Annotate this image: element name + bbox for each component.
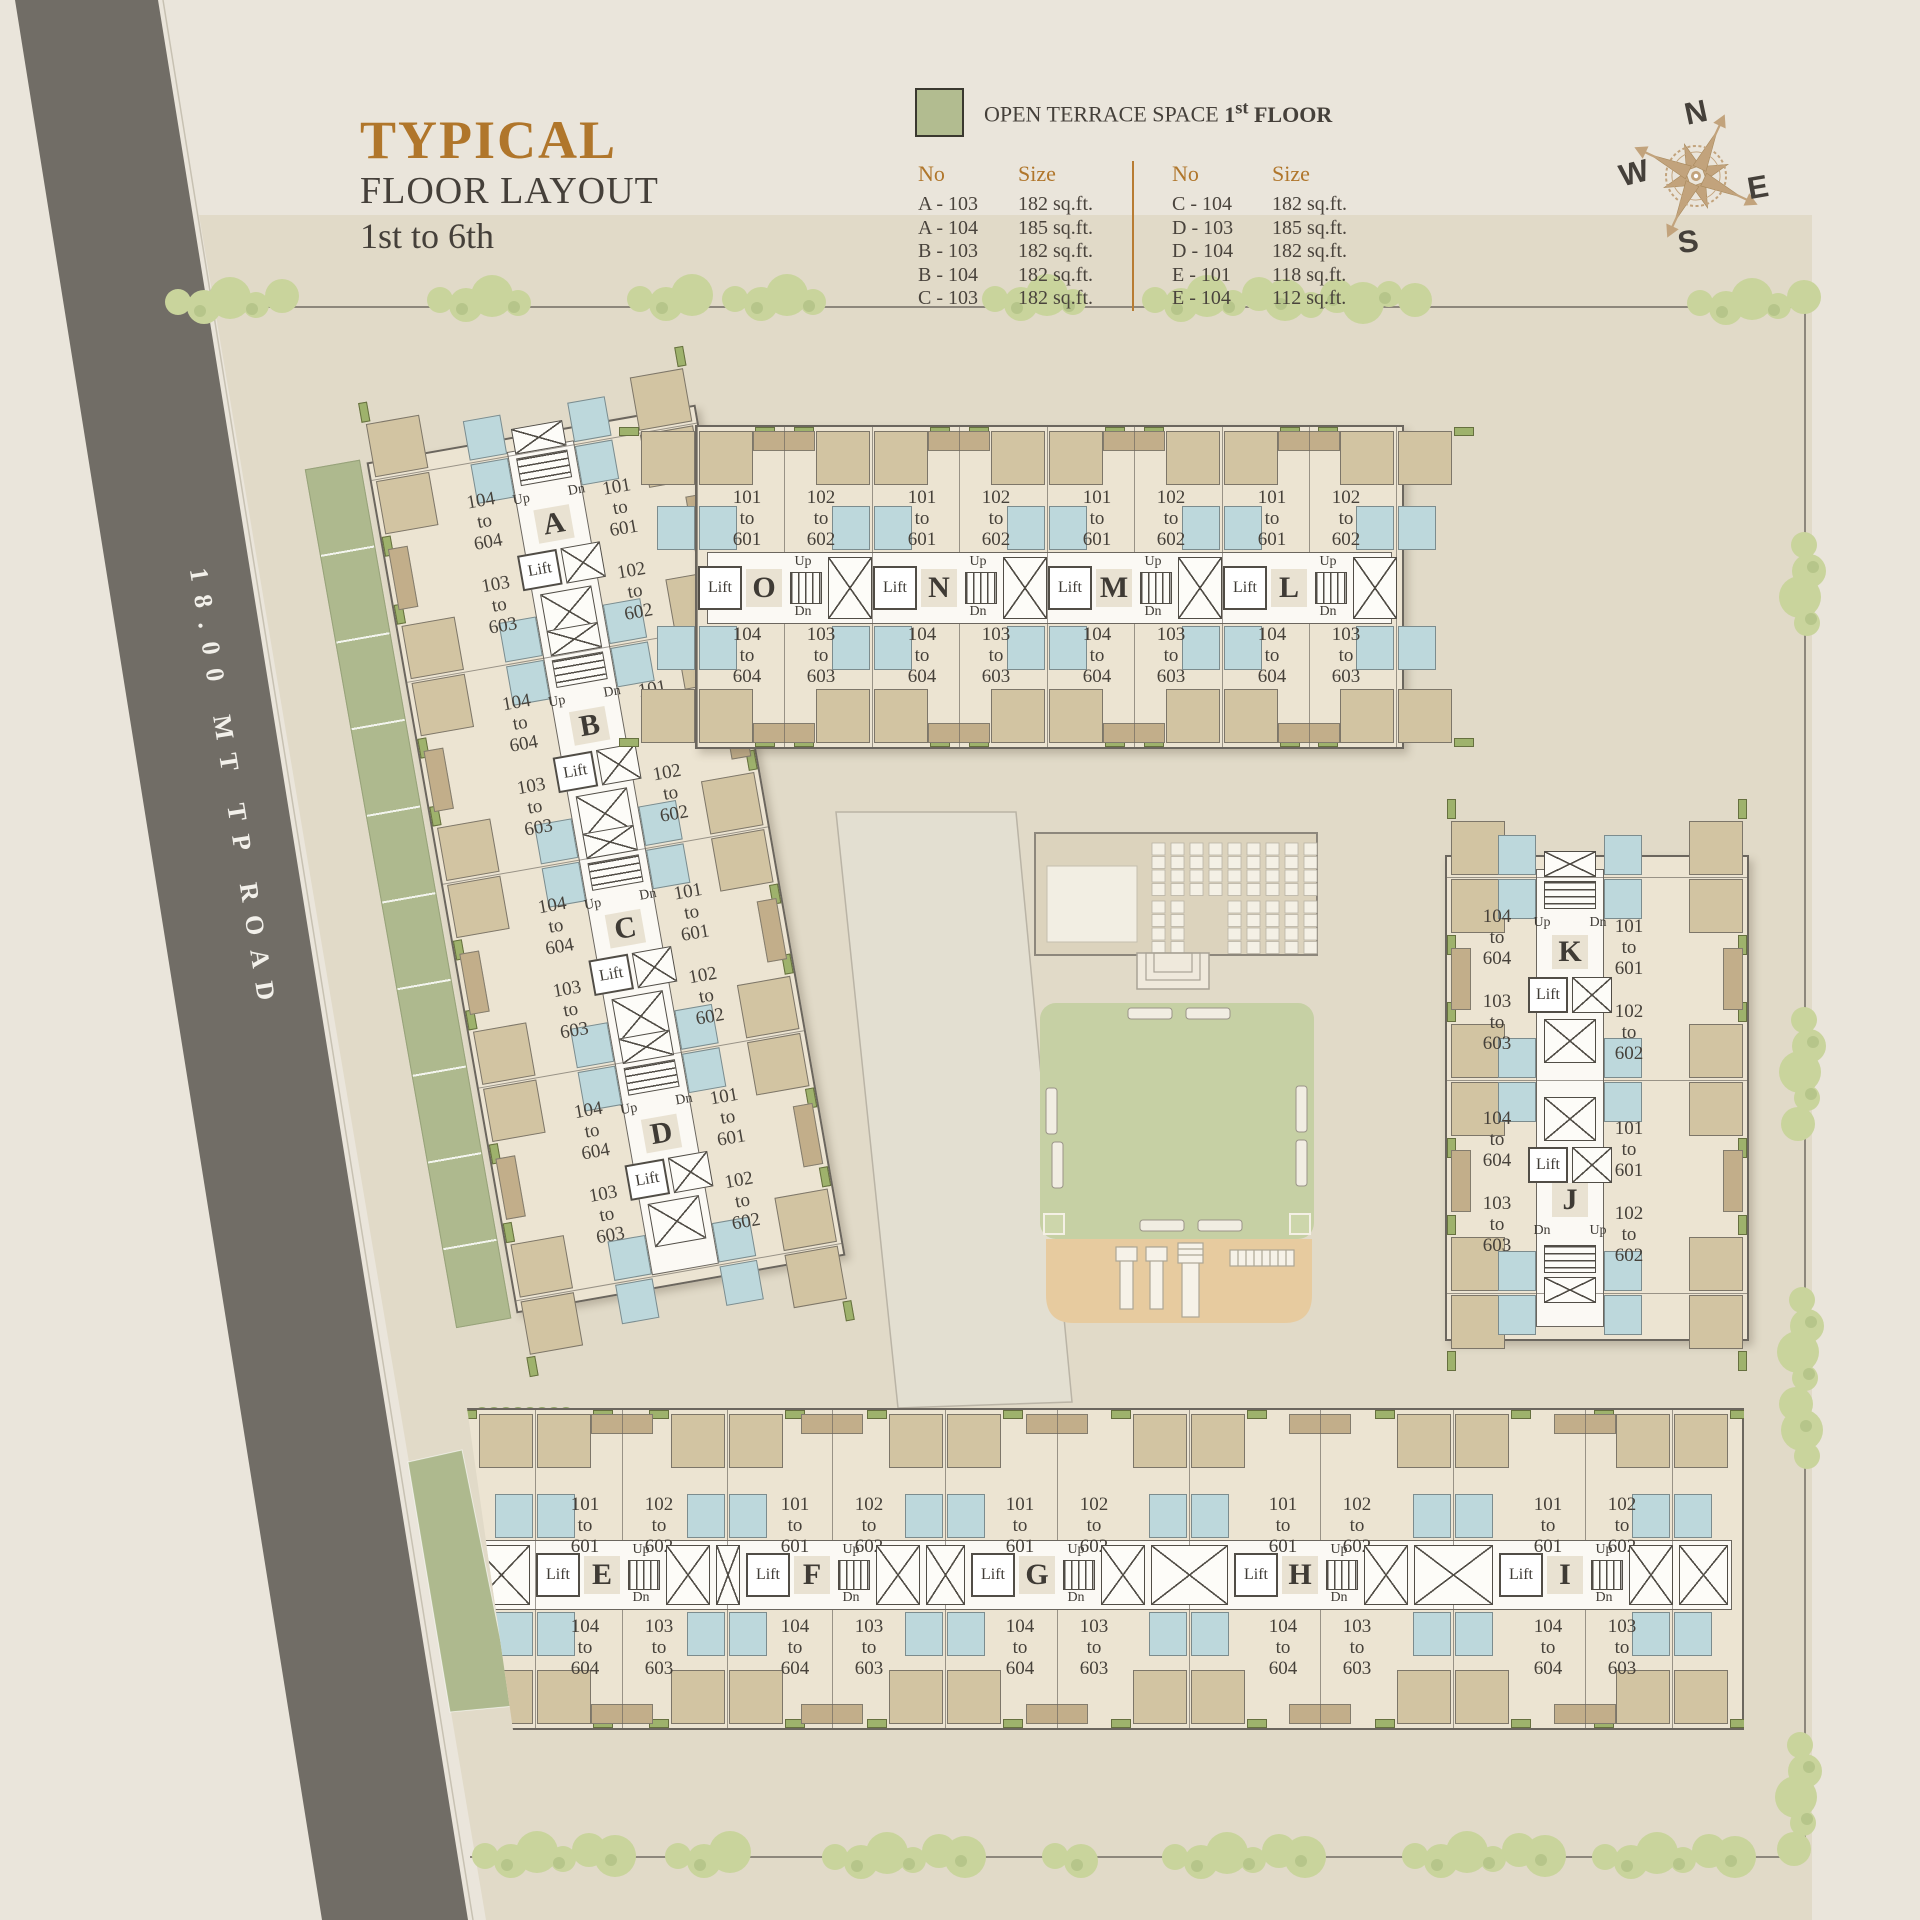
- stairs: [790, 572, 822, 604]
- wall-line: [1320, 1610, 1321, 1728]
- up-label: Up: [1059, 1542, 1093, 1558]
- dn-label: Dn: [1059, 1590, 1093, 1606]
- room: [1674, 1414, 1728, 1468]
- up-label: Up: [1136, 554, 1170, 570]
- lift: Lift: [1528, 1147, 1568, 1183]
- terrace: [1454, 738, 1474, 747]
- bath: [1413, 1494, 1451, 1538]
- dn-label: Dn: [1311, 604, 1345, 620]
- unit-label: 104 to 604: [988, 1616, 1052, 1679]
- unit-no: E - 104: [1172, 287, 1272, 311]
- unit-size: 182 sq.ft.: [1018, 240, 1093, 264]
- wall-line: [622, 1610, 623, 1728]
- terrace: [1111, 1719, 1131, 1728]
- wall-line: [1134, 427, 1135, 552]
- room: [889, 1414, 943, 1468]
- duct-x: [876, 1545, 920, 1605]
- core-letter: I: [1547, 1556, 1583, 1594]
- bath: [687, 1494, 725, 1538]
- room: [537, 1414, 591, 1468]
- lift: Lift: [536, 1553, 580, 1597]
- duct-x: [1544, 1097, 1596, 1141]
- bath: [657, 626, 695, 670]
- unit-label: 101 to 601: [1240, 487, 1304, 550]
- unit-label: 104 to 604: [715, 624, 779, 687]
- open-terrace-floor-num: 1: [1224, 102, 1235, 127]
- core-letter: F: [794, 1556, 830, 1594]
- terrace: [1738, 799, 1747, 819]
- balcony: [757, 898, 787, 963]
- terrace: [1003, 1719, 1023, 1728]
- room: [473, 1022, 536, 1085]
- unit-label: 104 to 604: [1251, 1616, 1315, 1679]
- col-header-size: Size: [1018, 161, 1056, 187]
- bath: [1498, 1251, 1536, 1291]
- floor-range: 1st to 6th: [360, 214, 659, 258]
- lift: Lift: [624, 1158, 670, 1200]
- unit-label: 104 to 604: [763, 1616, 827, 1679]
- unit-size-row: D - 103185 sq.ft.: [1172, 217, 1392, 241]
- up-label: Up: [624, 1542, 658, 1558]
- room: [1689, 1237, 1743, 1291]
- room: [1340, 431, 1394, 485]
- terrace: [1003, 1410, 1023, 1419]
- col-header-no: No: [1172, 161, 1272, 187]
- room: [699, 431, 753, 485]
- unit-label: 101 to 601: [988, 1494, 1052, 1557]
- wall-line: [1320, 1410, 1321, 1540]
- open-terrace-floor-word: FLOOR: [1248, 102, 1332, 127]
- dn-label: Dn: [961, 604, 995, 620]
- unit-label: 104 to 604: [1465, 1108, 1529, 1171]
- duct-x: [1679, 1545, 1728, 1605]
- wall-line: [1309, 624, 1310, 747]
- terrace: [1511, 1719, 1531, 1728]
- site-plan: 18.00 MT TP ROAD TYPICAL FLOOR LAYOUT 1s…: [0, 0, 1920, 1920]
- unit-size-row: C - 103182 sq.ft.: [918, 287, 1118, 311]
- compass-west: W: [1616, 152, 1654, 193]
- lift: Lift: [1528, 977, 1568, 1013]
- duct-x: [560, 541, 606, 583]
- terrace: [503, 1222, 515, 1243]
- bath: [1398, 506, 1436, 550]
- wall-line: [622, 1410, 623, 1540]
- stairs: [965, 572, 997, 604]
- legend: OPEN TERRACE SPACE 1st FLOOR NoSizeA - 1…: [915, 88, 1392, 311]
- room: [641, 431, 695, 485]
- unit-label: 102 to 602: [1139, 487, 1203, 550]
- col-header-no: No: [918, 161, 1018, 187]
- unit-label: 104 to 604: [1465, 906, 1529, 969]
- unit-size: 182 sq.ft.: [1018, 264, 1093, 288]
- unit-label: 101 to 601: [1065, 487, 1129, 550]
- core-letter: K: [1552, 935, 1588, 969]
- core-letter: N: [921, 569, 957, 607]
- bath: [687, 1612, 725, 1656]
- unit-label: 101 to 601: [1516, 1494, 1580, 1557]
- bath: [1498, 1295, 1536, 1335]
- terrace: [867, 1410, 887, 1419]
- stairs: [1544, 881, 1596, 909]
- unit-size: 118 sq.ft.: [1272, 264, 1346, 288]
- unit-no: C - 103: [918, 287, 1018, 311]
- room: [1191, 1670, 1245, 1724]
- bath: [729, 1612, 767, 1656]
- bath: [1674, 1494, 1712, 1538]
- bath: [463, 415, 507, 461]
- unit-size-row: B - 104182 sq.ft.: [918, 264, 1118, 288]
- terrace: [619, 738, 639, 747]
- open-terrace-label: OPEN TERRACE SPACE 1st FLOOR: [984, 97, 1332, 127]
- duct-x: [1544, 851, 1596, 877]
- lift: Lift: [746, 1553, 790, 1597]
- unit-size: 182 sq.ft.: [1018, 287, 1093, 311]
- room: [1674, 1670, 1728, 1724]
- entrance-steps: [1137, 953, 1209, 989]
- dn-label: Dn: [624, 1590, 658, 1606]
- room: [991, 689, 1045, 743]
- wall-line: [1447, 1293, 1747, 1294]
- room: [411, 673, 474, 736]
- bath: [1149, 1612, 1187, 1656]
- bath: [567, 396, 611, 442]
- terrace: [1247, 1410, 1267, 1419]
- room: [1397, 1414, 1451, 1468]
- room: [816, 689, 870, 743]
- stairs: [1544, 1245, 1596, 1273]
- wall-line: [1134, 624, 1135, 747]
- up-label: Up: [1322, 1542, 1356, 1558]
- room: [1689, 1024, 1743, 1078]
- unit-label: 101 to 601: [1251, 1494, 1315, 1557]
- balcony: [423, 748, 453, 813]
- room: [521, 1292, 584, 1355]
- room: [1689, 1082, 1743, 1136]
- core-letter: A: [533, 504, 574, 544]
- unit-size-row: A - 104185 sq.ft.: [918, 217, 1118, 241]
- unit-label: 103 to 603: [837, 1616, 901, 1679]
- balcony: [793, 1103, 823, 1168]
- room: [479, 1414, 533, 1468]
- unit-size-row: A - 103182 sq.ft.: [918, 193, 1118, 217]
- room: [1451, 1295, 1505, 1349]
- room: [1451, 821, 1505, 875]
- core-letter: H: [1282, 1556, 1318, 1594]
- core-letter: E: [584, 1556, 620, 1594]
- duct-x: [632, 946, 678, 988]
- wall-line: [1057, 1410, 1058, 1540]
- terrace: [1375, 1410, 1395, 1419]
- wall-line: [832, 1410, 833, 1540]
- lift: Lift: [1223, 566, 1267, 610]
- room: [1398, 689, 1452, 743]
- up-label: Up: [834, 1542, 868, 1558]
- terrace: [1247, 1719, 1267, 1728]
- stairs: [1591, 1560, 1623, 1590]
- duct-x: [1629, 1545, 1673, 1605]
- bath: [729, 1494, 767, 1538]
- unit-label: 102 to 602: [669, 960, 743, 1033]
- unit-label: 103 to 603: [1325, 1616, 1389, 1679]
- unit-size-column: NoSizeC - 104182 sq.ft.D - 103185 sq.ft.…: [1132, 161, 1392, 311]
- room: [1616, 1414, 1670, 1468]
- room: [947, 1414, 1001, 1468]
- room: [1455, 1670, 1509, 1724]
- unit-label: 101 to 601: [553, 1494, 617, 1557]
- up-label: Up: [961, 554, 995, 570]
- lift: Lift: [1499, 1553, 1543, 1597]
- open-terrace-label-text: OPEN TERRACE SPACE: [984, 102, 1224, 127]
- compass: N E S W: [1608, 70, 1788, 260]
- bath: [1604, 1295, 1642, 1335]
- dn-label: Dn: [1582, 915, 1614, 931]
- dn-label: Dn: [1136, 604, 1170, 620]
- room: [1224, 431, 1278, 485]
- unit-label: 104 to 604: [890, 624, 954, 687]
- room: [991, 431, 1045, 485]
- bath: [1455, 1612, 1493, 1656]
- lift: Lift: [873, 566, 917, 610]
- wall-line: [784, 624, 785, 747]
- room: [641, 689, 695, 743]
- unit-label: 104 to 604: [1065, 624, 1129, 687]
- dn-label: Dn: [786, 604, 820, 620]
- title-block: TYPICAL FLOOR LAYOUT 1st to 6th: [360, 112, 659, 258]
- unit-label: 102 to 602: [598, 555, 672, 628]
- unit-label: 103 to 603: [1465, 1193, 1529, 1256]
- bath: [947, 1612, 985, 1656]
- unit-no: B - 103: [918, 240, 1018, 264]
- terrace: [819, 1166, 831, 1187]
- unit-size: 182 sq.ft.: [1272, 240, 1347, 264]
- unit-size-row: C - 104182 sq.ft.: [1172, 193, 1392, 217]
- room: [729, 1414, 783, 1468]
- duct-x: [1572, 977, 1612, 1013]
- unit-size: 182 sq.ft.: [1272, 193, 1347, 217]
- room: [1133, 1414, 1187, 1468]
- core-letter: M: [1096, 569, 1132, 607]
- play-area: [1046, 1239, 1312, 1323]
- building-north: 101 to 601102 to 602104 to 604103 to 603…: [695, 425, 1404, 749]
- unit-label: 101 to 601: [763, 1494, 827, 1557]
- unit-size-column: NoSizeA - 103182 sq.ft.A - 104185 sq.ft.…: [915, 161, 1118, 311]
- room: [510, 1235, 573, 1298]
- room: [1340, 689, 1394, 743]
- bath: [1498, 835, 1536, 875]
- room: [1191, 1414, 1245, 1468]
- unit-no: A - 103: [918, 193, 1018, 217]
- unit-label: 101 to 601: [890, 487, 954, 550]
- balcony: [459, 950, 489, 1015]
- terrace: [1447, 799, 1456, 819]
- lift: Lift: [517, 549, 563, 591]
- unit-label: 101 to 601: [691, 1081, 765, 1154]
- unit-no: E - 101: [1172, 264, 1272, 288]
- up-label: Up: [786, 554, 820, 570]
- unit-no: C - 104: [1172, 193, 1272, 217]
- unit-label: 104 to 604: [553, 1616, 617, 1679]
- room: [874, 689, 928, 743]
- lift: Lift: [553, 751, 599, 793]
- unit-label: 102 to 602: [789, 487, 853, 550]
- duct-x: [666, 1545, 710, 1605]
- bath: [719, 1260, 763, 1306]
- room: [1397, 1670, 1451, 1724]
- lift: Lift: [1048, 566, 1092, 610]
- room: [447, 876, 510, 939]
- room: [816, 431, 870, 485]
- terrace: [619, 427, 639, 436]
- wall-line: [1447, 877, 1747, 878]
- unit-label: 103 to 603: [1062, 1616, 1126, 1679]
- room: [1398, 431, 1452, 485]
- up-label: Up: [1526, 915, 1558, 931]
- stairs: [1140, 572, 1172, 604]
- up-label: Up: [1311, 554, 1345, 570]
- unit-label: 103 to 603: [964, 624, 1028, 687]
- duct-x: [716, 1545, 740, 1605]
- unit-label: 102 to 602: [634, 757, 708, 830]
- room: [1133, 1670, 1187, 1724]
- unit-size: 185 sq.ft.: [1272, 217, 1347, 241]
- unit-label: 102 to 602: [1314, 487, 1378, 550]
- duct-x: [1003, 557, 1047, 619]
- wall-line: [784, 427, 785, 552]
- room: [784, 1246, 847, 1309]
- bath: [905, 1494, 943, 1538]
- room: [437, 818, 500, 881]
- bath: [1604, 879, 1642, 919]
- wall-line: [959, 624, 960, 747]
- page-subtitle: FLOOR LAYOUT: [360, 168, 659, 214]
- duct-x: [648, 1195, 707, 1247]
- unit-size-table: NoSizeA - 103182 sq.ft.A - 104185 sq.ft.…: [915, 161, 1392, 311]
- bath: [1604, 835, 1642, 875]
- balcony: [495, 1155, 525, 1220]
- room: [774, 1189, 837, 1252]
- unit-size: 112 sq.ft.: [1272, 287, 1346, 311]
- room: [874, 431, 928, 485]
- core-letter: O: [746, 569, 782, 607]
- wall-line: [1585, 1610, 1586, 1728]
- unit-label: 103 to 603: [1139, 624, 1203, 687]
- duct-x: [926, 1545, 965, 1605]
- up-label: Up: [1587, 1542, 1621, 1558]
- room: [1455, 1414, 1509, 1468]
- duct-x: [1151, 1545, 1228, 1605]
- duct-x: [596, 743, 642, 785]
- open-terrace-floor-sup: st: [1235, 97, 1248, 117]
- bath: [1674, 1612, 1712, 1656]
- core-letter: G: [1019, 1556, 1055, 1594]
- room: [630, 368, 693, 431]
- room: [483, 1079, 546, 1142]
- duct-x: [1101, 1545, 1145, 1605]
- wall-line: [832, 1610, 833, 1728]
- unit-label: 103 to 603: [789, 624, 853, 687]
- wall-line: [1447, 1080, 1747, 1081]
- unit-label: 103 to 603: [1314, 624, 1378, 687]
- lift: Lift: [1234, 1553, 1278, 1597]
- col-header-size: Size: [1272, 161, 1310, 187]
- duct-x: [1544, 1277, 1596, 1303]
- room: [701, 772, 764, 835]
- wall-line: [959, 427, 960, 552]
- unit-size: 182 sq.ft.: [1018, 193, 1093, 217]
- duct-x: [828, 557, 872, 619]
- terrace: [1738, 1351, 1747, 1371]
- dn-label: Dn: [1526, 1223, 1558, 1239]
- terrace: [1738, 1215, 1747, 1235]
- duct-x: [668, 1151, 714, 1193]
- bath: [905, 1612, 943, 1656]
- bath: [657, 506, 695, 550]
- stairs: [628, 1560, 660, 1590]
- stairs: [1063, 1560, 1095, 1590]
- compass-south: S: [1675, 223, 1700, 260]
- room: [366, 415, 429, 478]
- lift: Lift: [698, 566, 742, 610]
- unit-label: 103 to 603: [1465, 991, 1529, 1054]
- stairs: [838, 1560, 870, 1590]
- room: [1689, 821, 1743, 875]
- core-letter: J: [1552, 1183, 1588, 1217]
- room: [1689, 879, 1743, 933]
- terrace: [1511, 1410, 1531, 1419]
- lawn: [1040, 1003, 1314, 1239]
- bath: [1413, 1612, 1451, 1656]
- room: [671, 1414, 725, 1468]
- bath: [1398, 626, 1436, 670]
- unit-label: 104 to 604: [1516, 1616, 1580, 1679]
- terrace: [867, 1719, 887, 1728]
- bath: [947, 1494, 985, 1538]
- unit-no: B - 104: [918, 264, 1018, 288]
- room: [401, 616, 464, 679]
- terrace: [1375, 1719, 1395, 1728]
- unit-no: D - 103: [1172, 217, 1272, 241]
- unit-label: 103 to 603: [627, 1616, 691, 1679]
- compass-north: N: [1681, 93, 1710, 132]
- room: [1049, 431, 1103, 485]
- unit-size-row: E - 101118 sq.ft.: [1172, 264, 1392, 288]
- unit-label: 104 to 604: [1240, 624, 1304, 687]
- balcony: [388, 546, 418, 611]
- up-label: Up: [1582, 1223, 1614, 1239]
- balcony: [1723, 948, 1743, 1010]
- room: [737, 976, 800, 1039]
- core-letter: C: [605, 909, 646, 949]
- duct-x: [1414, 1545, 1493, 1605]
- unit-no: A - 104: [918, 217, 1018, 241]
- bath: [1604, 1082, 1642, 1122]
- dn-label: Dn: [1322, 1590, 1356, 1606]
- room: [1049, 689, 1103, 743]
- core-letter: B: [569, 706, 610, 746]
- wall-line: [1309, 427, 1310, 552]
- unit-label: 103 to 603: [1590, 1616, 1654, 1679]
- terrace: [1447, 1215, 1456, 1235]
- duct-x: [1353, 557, 1397, 619]
- core-letter: L: [1271, 569, 1307, 607]
- unit-size-row: B - 103182 sq.ft.: [918, 240, 1118, 264]
- terrace: [1454, 427, 1474, 436]
- open-terrace-swatch: [915, 88, 964, 137]
- unit-no: D - 104: [1172, 240, 1272, 264]
- room: [747, 1033, 810, 1096]
- unit-label: 101 to 601: [655, 876, 729, 949]
- room: [376, 472, 439, 535]
